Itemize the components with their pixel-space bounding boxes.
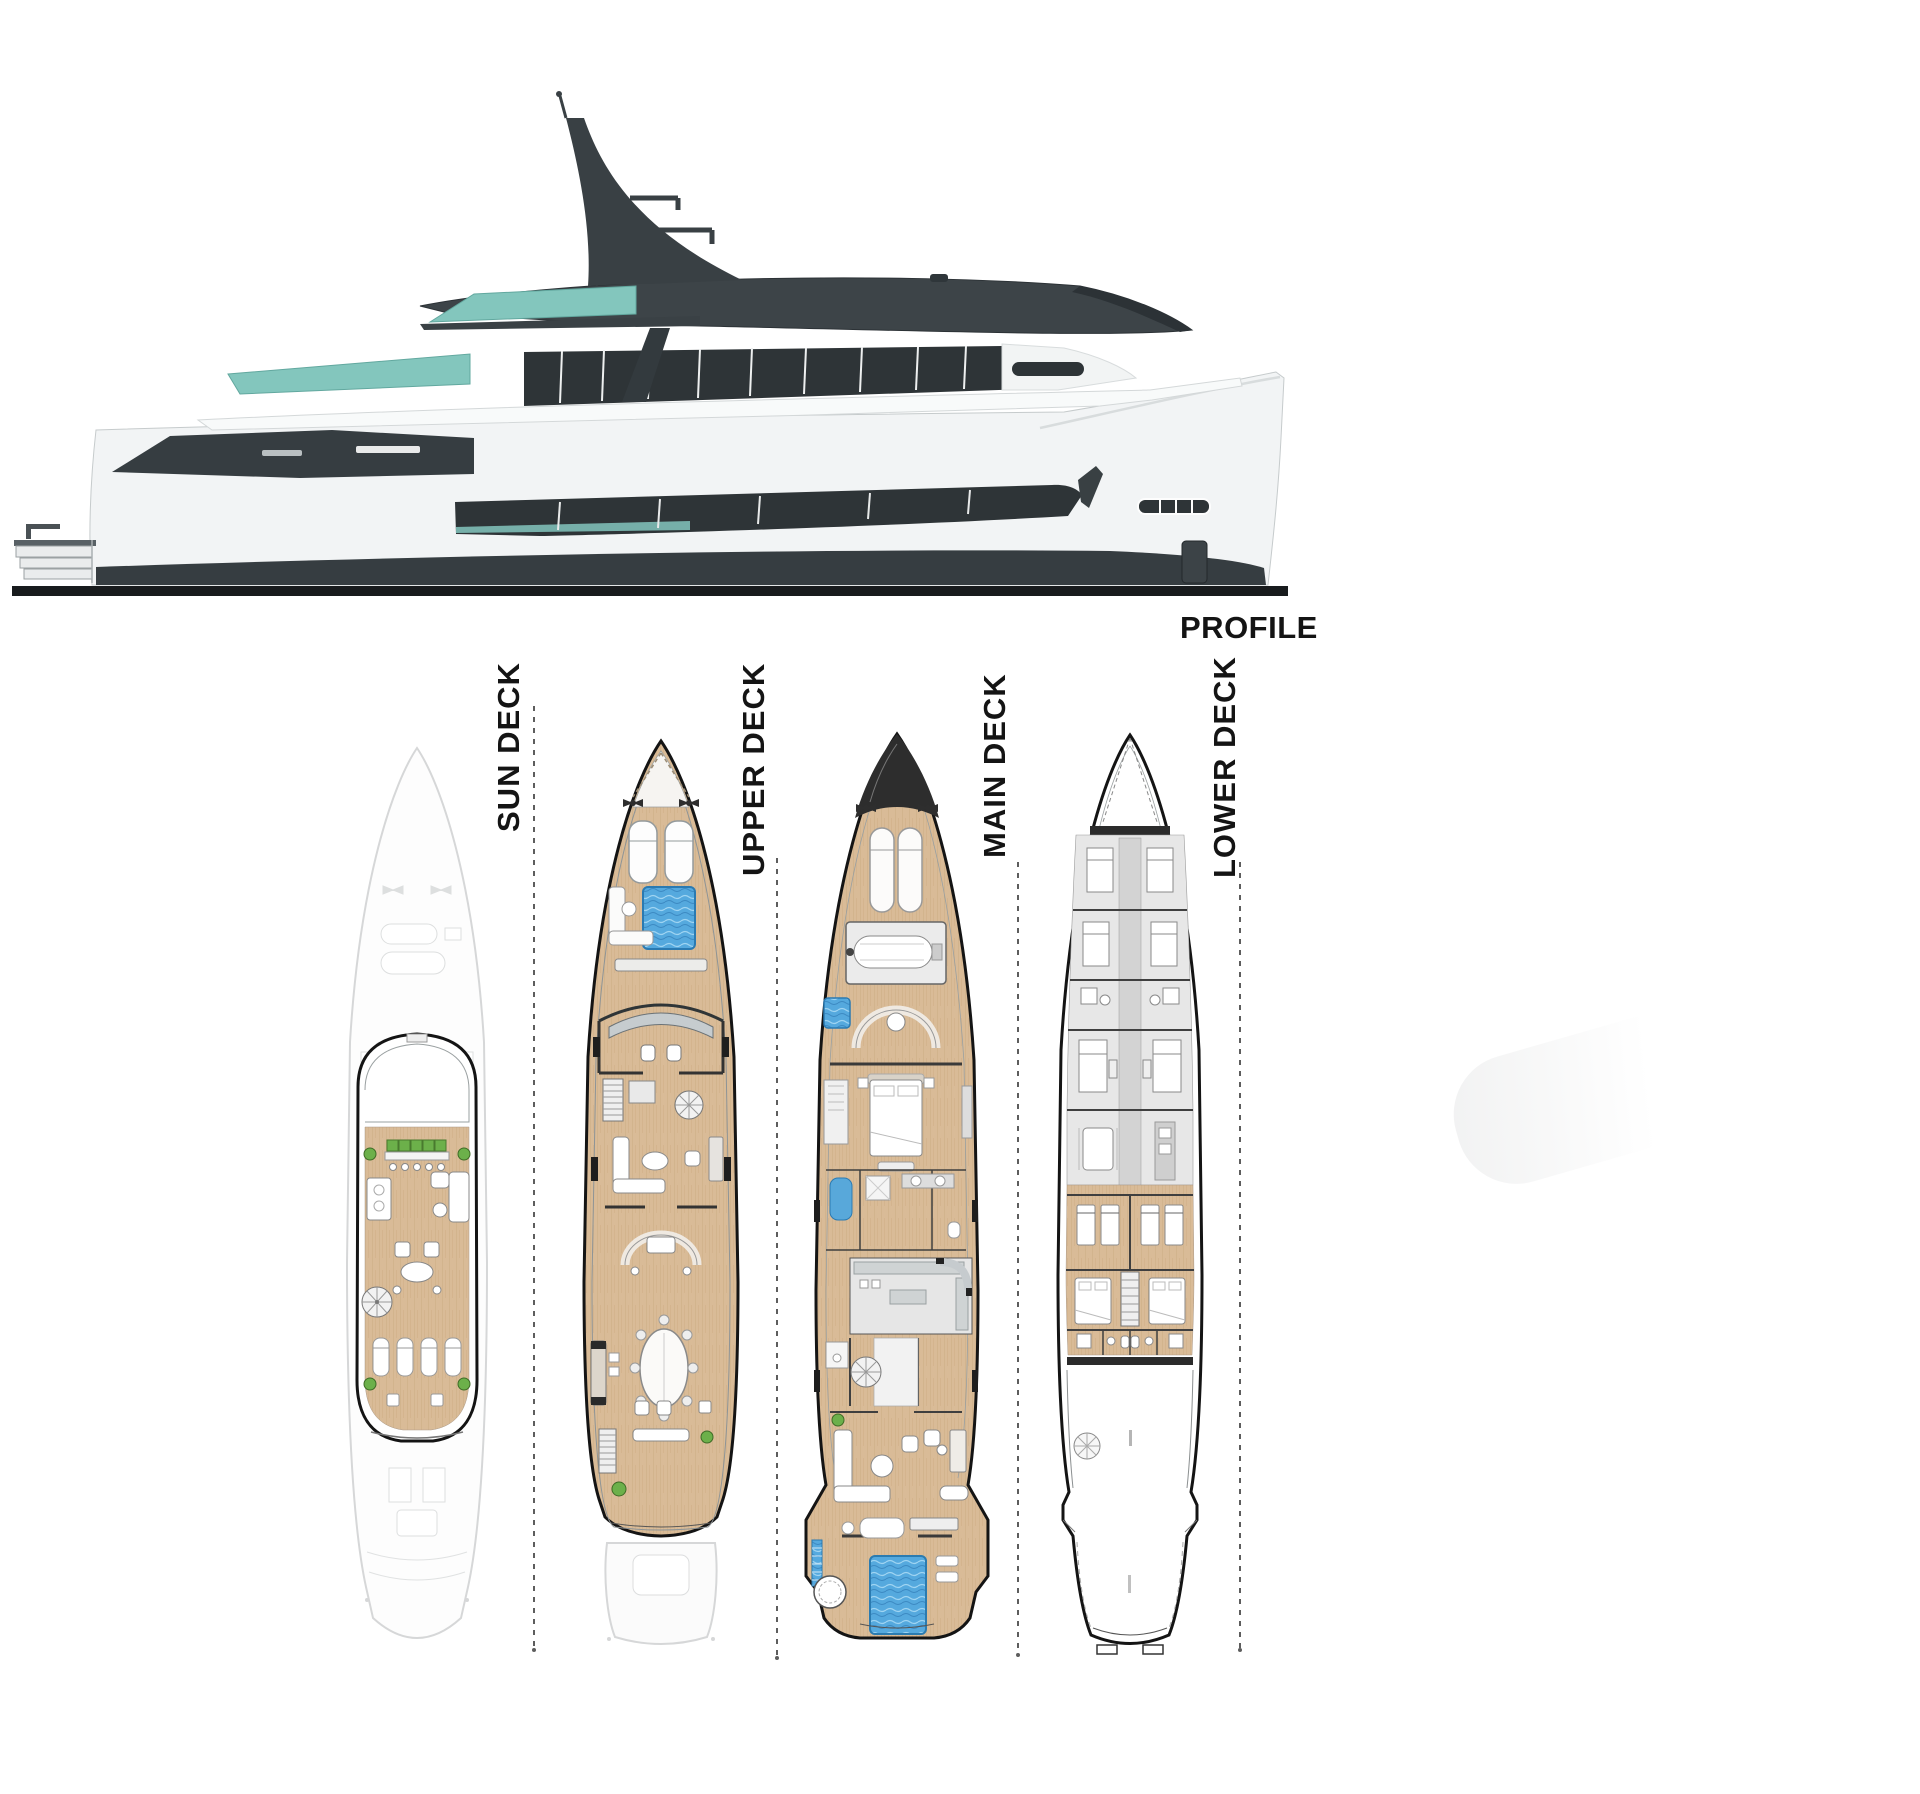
- yacht-profile-illustration: [0, 78, 1320, 653]
- sun-deck-structure: [357, 1034, 477, 1441]
- superstructure: [198, 274, 1242, 430]
- main-deck-leader-line: [1017, 862, 1019, 1655]
- upper-deck-label: UPPER DECK: [736, 663, 772, 876]
- anchor-door: [1182, 541, 1207, 583]
- lower-deck-label: LOWER DECK: [1207, 656, 1243, 878]
- main-deck-label: MAIN DECK: [977, 673, 1013, 858]
- background-smudge: [1440, 996, 1745, 1198]
- engine-room-bulkhead: [1067, 1357, 1193, 1365]
- sun-deck-label: SUN DECK: [491, 662, 527, 832]
- upper-teal-windbreak: [228, 354, 470, 394]
- waterline: [12, 586, 1288, 596]
- tender: [854, 936, 932, 968]
- bath-tub: [830, 1178, 852, 1220]
- guest-cabins: [1066, 1185, 1194, 1355]
- profile-label: PROFILE: [1180, 610, 1290, 646]
- plant: [701, 1431, 713, 1443]
- ghost-aft-deck: [605, 1543, 716, 1644]
- bow-bulwark: [855, 734, 939, 818]
- port-staircase: [603, 1079, 623, 1121]
- collision-bulkhead: [1090, 826, 1170, 835]
- bar: [385, 1140, 449, 1171]
- sun-deck-leader-line: [533, 706, 535, 1650]
- spiral-staircase: [675, 1091, 703, 1119]
- stern-davit: [26, 524, 60, 539]
- upper-deck-plan: [569, 737, 759, 1702]
- plant: [612, 1482, 626, 1496]
- stern-swim-steps: [14, 540, 96, 579]
- sun-deck-plan: [337, 742, 497, 1657]
- tender-bay: [846, 922, 946, 984]
- aft-stairs: [599, 1429, 616, 1473]
- mast: [556, 91, 742, 286]
- bow-hull-window: [1138, 499, 1210, 514]
- upper-deck-leader-line: [776, 858, 778, 1658]
- beach-pool: [870, 1556, 926, 1634]
- grill-island: [367, 1178, 391, 1220]
- foredeck-plunge-pool: [824, 998, 850, 1028]
- spiral-staircase: [1074, 1433, 1100, 1459]
- plant: [832, 1414, 844, 1426]
- lower-deck-plan: [1043, 730, 1217, 1670]
- galley: [850, 1258, 972, 1334]
- lower-deck-leader-line: [1239, 862, 1241, 1650]
- crew-quarters: [1067, 835, 1193, 1185]
- yacht-ga-sheet: PROFILE: [0, 0, 1920, 1794]
- main-deck-plan: [790, 730, 1002, 1680]
- spiral-staircase: [362, 1287, 392, 1317]
